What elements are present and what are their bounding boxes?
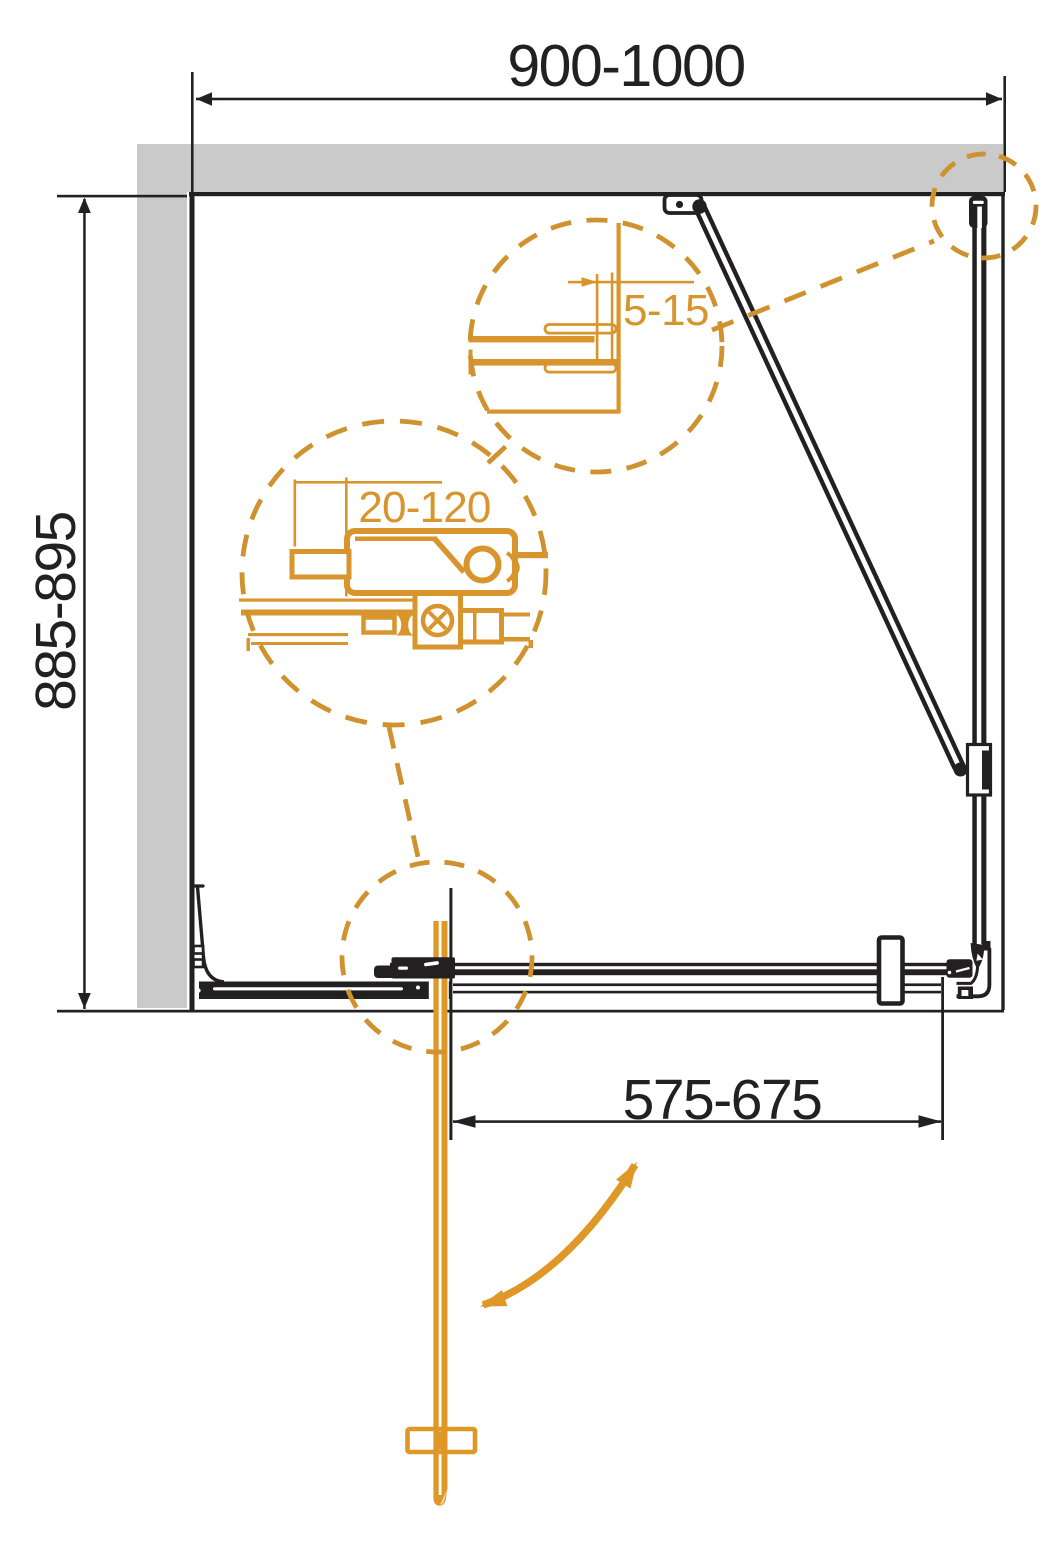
svg-text:575-675: 575-675 — [623, 1068, 822, 1132]
svg-text:885-895: 885-895 — [24, 512, 88, 711]
svg-text:5-15: 5-15 — [623, 286, 709, 335]
svg-text:20-120: 20-120 — [358, 483, 490, 532]
svg-text:900-1000: 900-1000 — [507, 33, 744, 99]
